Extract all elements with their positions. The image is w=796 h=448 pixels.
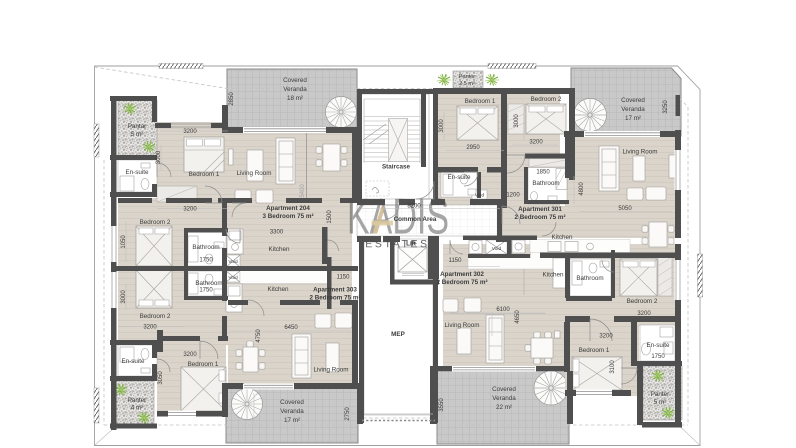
svg-text:Veranda: Veranda: [280, 408, 304, 415]
svg-text:5 m²: 5 m²: [654, 399, 667, 406]
svg-text:Panter: Panter: [651, 391, 670, 398]
svg-text:1750: 1750: [199, 258, 213, 264]
svg-text:1750: 1750: [199, 288, 213, 294]
svg-text:Veranda: Veranda: [283, 86, 307, 93]
svg-text:3300: 3300: [270, 230, 284, 236]
svg-text:Kitchen: Kitchen: [551, 234, 573, 241]
svg-text:Bathroom: Bathroom: [192, 244, 219, 251]
svg-text:Bedroom 2: Bedroom 2: [531, 96, 562, 103]
svg-text:1500: 1500: [327, 210, 333, 224]
svg-text:Bathroom: Bathroom: [532, 180, 559, 187]
svg-text:Kitchen: Kitchen: [268, 246, 290, 253]
svg-text:Bedroom 2: Bedroom 2: [627, 298, 658, 305]
svg-text:1200: 1200: [506, 193, 520, 199]
svg-text:Living Room: Living Room: [314, 367, 349, 374]
svg-text:Living Room: Living Room: [237, 170, 272, 177]
svg-text:En-suite: En-suite: [447, 174, 471, 181]
svg-text:En-suite: En-suite: [646, 342, 670, 349]
svg-text:Bedroom 1: Bedroom 1: [188, 361, 219, 368]
svg-text:8200: 8200: [407, 204, 421, 210]
svg-text:2850: 2850: [229, 92, 235, 106]
svg-text:4650: 4650: [515, 310, 521, 324]
svg-text:Bedroom 2: Bedroom 2: [140, 313, 171, 320]
svg-text:3200: 3200: [599, 334, 613, 340]
svg-text:2950: 2950: [466, 145, 480, 151]
svg-text:17 m²: 17 m²: [625, 115, 641, 122]
svg-text:4800: 4800: [579, 182, 585, 196]
svg-text:3200: 3200: [143, 325, 157, 331]
svg-text:Panter: Panter: [128, 397, 147, 404]
svg-text:Bathroom: Bathroom: [195, 280, 222, 287]
svg-text:3250: 3250: [663, 100, 669, 114]
svg-text:3000: 3000: [439, 119, 445, 133]
svg-text:2750: 2750: [345, 407, 351, 421]
svg-text:1050: 1050: [121, 235, 127, 249]
svg-text:Void: Void: [228, 259, 238, 265]
svg-text:Veranda: Veranda: [492, 395, 516, 402]
svg-text:MEP: MEP: [391, 331, 405, 338]
svg-text:3200: 3200: [183, 352, 197, 358]
svg-text:22 m²: 22 m²: [496, 404, 512, 411]
svg-text:2 Bedroom 75 m²: 2 Bedroom 75 m²: [514, 214, 565, 221]
svg-text:3000: 3000: [156, 150, 162, 164]
svg-text:Veranda: Veranda: [621, 106, 645, 113]
svg-text:Covered: Covered: [492, 386, 516, 393]
svg-text:Void: Void: [475, 193, 485, 199]
svg-text:Bedroom 2: Bedroom 2: [140, 219, 171, 226]
svg-text:Apartment 301: Apartment 301: [518, 206, 562, 213]
svg-text:Covered: Covered: [280, 399, 304, 406]
svg-text:Covered: Covered: [283, 77, 307, 84]
svg-text:Bedroom 1: Bedroom 1: [465, 98, 496, 105]
svg-text:Apartment 204: Apartment 204: [266, 205, 310, 212]
svg-text:17 m²: 17 m²: [284, 417, 300, 424]
svg-text:5 m²: 5 m²: [131, 131, 144, 138]
svg-text:Pantar: Pantar: [128, 123, 147, 130]
svg-text:Void: Void: [492, 246, 502, 252]
svg-text:Bathroom: Bathroom: [576, 275, 603, 282]
svg-text:5050: 5050: [618, 206, 632, 212]
svg-text:Kitchen: Kitchen: [267, 286, 289, 293]
svg-text:Covered: Covered: [621, 97, 645, 104]
svg-text:1150: 1150: [337, 275, 351, 281]
svg-text:18 m²: 18 m²: [287, 95, 303, 102]
svg-text:3 Bedroom 75 m²: 3 Bedroom 75 m²: [262, 213, 313, 220]
svg-text:Living Room: Living Room: [623, 149, 658, 156]
svg-text:Void: Void: [228, 275, 238, 281]
svg-text:2 Bedroom 75 m²: 2 Bedroom 75 m²: [309, 295, 360, 302]
svg-text:6100: 6100: [496, 307, 510, 313]
svg-text:3000: 3000: [121, 290, 127, 304]
svg-text:En-suite: En-suite: [121, 358, 145, 365]
svg-text:3100: 3100: [610, 360, 616, 374]
svg-text:5400: 5400: [300, 184, 306, 198]
svg-text:Common Area: Common Area: [394, 216, 437, 223]
svg-text:4750: 4750: [256, 329, 262, 343]
svg-text:6450: 6450: [284, 325, 298, 331]
svg-text:3200: 3200: [183, 129, 197, 135]
svg-text:En-suite: En-suite: [125, 169, 149, 176]
svg-text:1850: 1850: [536, 170, 550, 176]
svg-text:2.5 m²: 2.5 m²: [459, 81, 475, 87]
svg-text:Panter: Panter: [459, 74, 475, 80]
svg-text:3200: 3200: [183, 207, 197, 213]
svg-text:1750: 1750: [651, 354, 665, 360]
svg-text:3000: 3000: [514, 114, 520, 128]
svg-text:1150: 1150: [449, 258, 463, 264]
svg-text:Bedroom 1: Bedroom 1: [579, 347, 610, 354]
svg-text:4 m²: 4 m²: [131, 405, 144, 412]
svg-text:2 Bedroom 75 m²: 2 Bedroom 75 m²: [436, 279, 487, 286]
svg-text:Bedroom 1: Bedroom 1: [189, 171, 220, 178]
svg-text:Kitchen: Kitchen: [542, 272, 564, 279]
svg-text:3200: 3200: [637, 311, 651, 317]
svg-text:3050: 3050: [158, 371, 164, 385]
svg-text:3550: 3550: [439, 398, 445, 412]
svg-text:3200: 3200: [529, 140, 543, 146]
svg-text:Apartment 302: Apartment 302: [440, 271, 484, 278]
svg-text:Staircase: Staircase: [382, 164, 411, 171]
svg-text:Apartment 303: Apartment 303: [313, 287, 357, 294]
svg-text:Living Room: Living Room: [445, 322, 480, 329]
svg-text:Lift: Lift: [406, 241, 417, 248]
